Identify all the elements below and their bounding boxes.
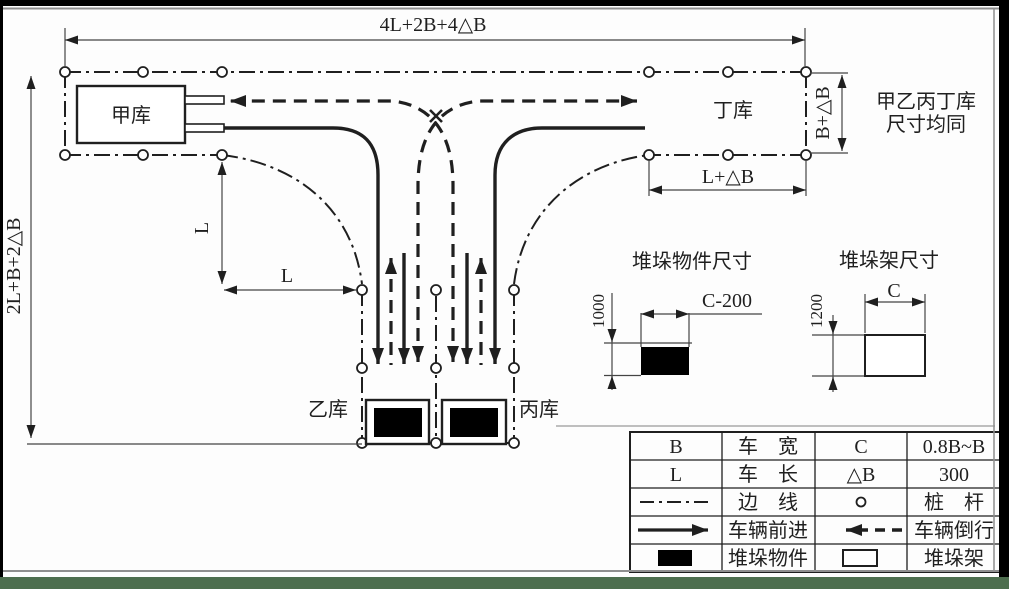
legend-rack-symbol (843, 550, 877, 566)
note-line2: 尺寸均同 (886, 113, 966, 136)
table-r3c4: 桩 杆 (924, 491, 984, 514)
stack-rack-height-label: 1200 (807, 294, 826, 328)
warehouse-b-label: 乙库 (308, 398, 348, 421)
dim-left-label: 2L+B+2△B (3, 218, 25, 315)
forward-path-right (495, 128, 645, 364)
table-r4c4: 车辆倒行 (914, 519, 994, 542)
dim-l-plus-db-label: L+△B (702, 166, 754, 188)
dim-l-horizontal-label: L (281, 265, 293, 287)
stacked-object-right (450, 408, 498, 437)
legend-stacked-object-symbol (658, 550, 692, 566)
table-r1c3: C (854, 436, 867, 458)
table-r4c2: 车辆前进 (728, 519, 808, 542)
table-r5c2: 堆垛物件 (728, 547, 808, 570)
warehouse-a-label: 甲库 (111, 104, 151, 127)
warehouse-d-label: 丁库 (713, 99, 753, 122)
stack-object-title: 堆垛物件尺寸 (632, 250, 752, 273)
top-black-band (0, 0, 1009, 6)
path-crossing-mark (430, 110, 442, 122)
fork-lower (185, 124, 224, 132)
table-r3c2: 边 线 (738, 491, 798, 514)
stack-rack-outline (865, 335, 925, 376)
stack-object-filled (641, 347, 689, 375)
right-black-band (999, 0, 1009, 589)
table-r2c3: △B (847, 464, 876, 486)
table-r1c1: B (669, 436, 682, 458)
table-r2c4: 300 (939, 464, 969, 486)
table-r5c4: 堆垛架 (924, 547, 984, 570)
diagram-canvas: 4L+2B+4△B 2L+B+2△B L L L+△B B+△B 甲库 丁库 乙… (0, 0, 1009, 589)
dim-top-label: 4L+2B+4△B (380, 14, 487, 36)
dim-l-vertical-label: L (191, 222, 213, 234)
table-r2c2: 车 长 (738, 463, 798, 486)
stack-rack-width-label: C (887, 280, 900, 302)
table-r2c1: L (670, 464, 682, 486)
legend-stake-circle-symbol (857, 498, 866, 507)
boundary-arc-right (514, 155, 649, 284)
fork-upper (185, 96, 224, 104)
left-black-edge (0, 0, 3, 589)
stack-rack-title: 堆垛架尺寸 (839, 249, 939, 272)
stack-object-width-label: C-200 (702, 290, 752, 312)
warehouse-c-label: 丙库 (519, 398, 559, 421)
stack-object-height-label: 1000 (589, 294, 608, 328)
bottom-green-band (0, 577, 1009, 589)
forklift-course-diagram: 4L+2B+4△B 2L+B+2△B L L L+△B B+△B 甲库 丁库 乙… (0, 0, 1009, 589)
forward-path-left (224, 128, 378, 364)
note-line1: 甲乙丙丁库 (876, 90, 976, 113)
table-r1c2: 车 宽 (738, 435, 798, 458)
table-r1c4: 0.8B~B (923, 436, 986, 458)
dim-b-plus-db-label: B+△B (812, 86, 834, 139)
stacked-object-left (374, 408, 422, 437)
